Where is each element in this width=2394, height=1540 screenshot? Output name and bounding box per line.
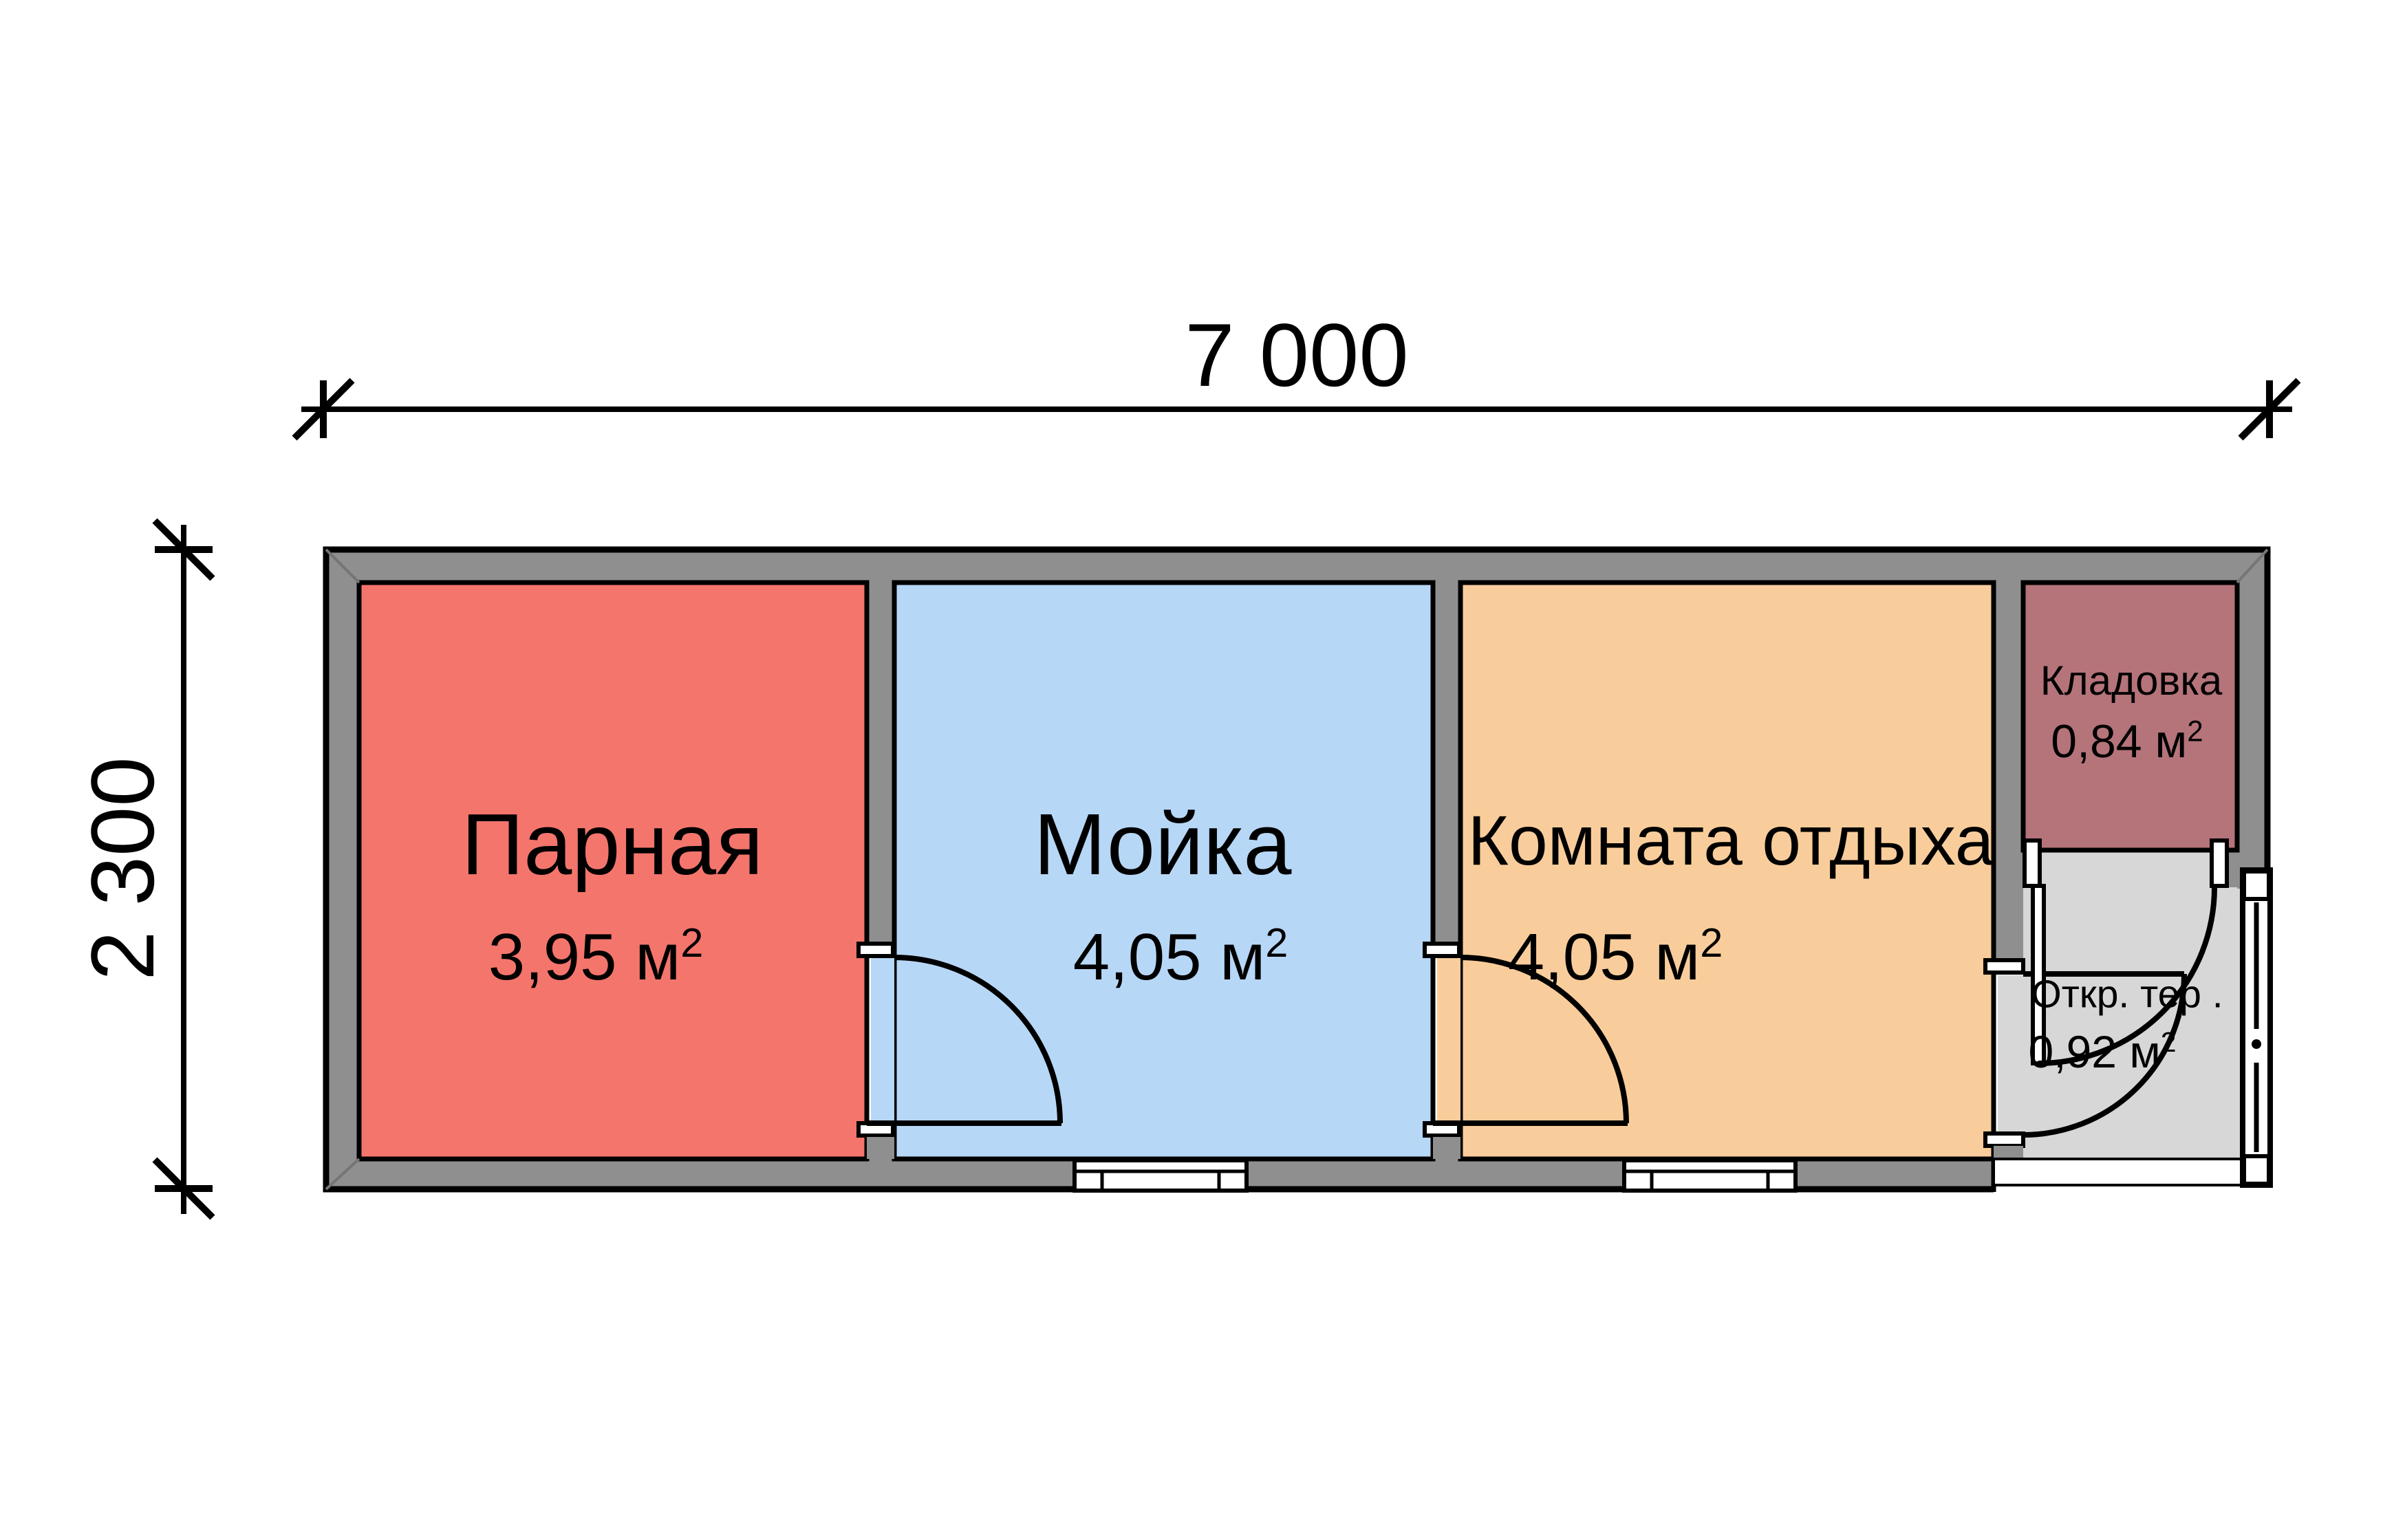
room-parnaya-area: 3,95 м2 (488, 924, 704, 990)
wall-stub-komnata (1994, 1146, 2023, 1159)
terrace-door-cap-bottom (2244, 1156, 2269, 1184)
partition-komnata-terrace (1994, 583, 2023, 960)
dimension-height-label: 2 300 (78, 757, 167, 980)
terrace-door-handle-dot (2252, 1039, 2261, 1049)
wall-stub-parnaya (867, 1137, 894, 1159)
room-terrace-area: 0,92 м2 (2029, 1029, 2177, 1074)
partition-moyka-komnata (1433, 583, 1460, 944)
jamb-kladovka-right (2212, 841, 2227, 886)
door-gap-moyka (1437, 957, 1460, 1123)
partition-parnaya-moyka (867, 583, 894, 944)
window-komnata (1624, 1160, 1795, 1191)
room-parnaya-name: Парная (462, 801, 764, 888)
room-kladovka-name: Кладовка (2040, 660, 2223, 702)
room-kladovka-area: 0,84 м2 (2051, 718, 2203, 765)
dimension-width-label: 7 000 (1185, 310, 1408, 400)
room-komnata-name: Комната отдыха (1468, 805, 1994, 876)
room-moyka-name: Мойка (1034, 801, 1292, 888)
floor-plan-drawing (0, 0, 2394, 1540)
floor-plan-canvas: 7 000 2 300 Парная 3,95 м2 Мойка 4,05 м2… (0, 0, 2394, 1540)
terrace-slab-edge (1994, 1159, 2270, 1185)
room-komnata-area: 4,05 м2 (1508, 924, 1723, 990)
room-terrace-name: Откр. тер . (2031, 975, 2223, 1015)
jamb-kladovka-left (2025, 841, 2040, 886)
jamb-komnata-bottom (1985, 1134, 2023, 1146)
terrace-entry-door (2243, 870, 2270, 1185)
jamb-parnaya-top (859, 944, 893, 956)
wall-stub-moyka (1433, 1137, 1460, 1159)
room-moyka-area: 4,05 м2 (1073, 924, 1288, 990)
jamb-moyka-top (1425, 944, 1459, 956)
jamb-komnata-top (1985, 960, 2023, 973)
door-gap-parnaya (871, 957, 894, 1123)
window-moyka (1075, 1160, 1247, 1191)
terrace-door-cap-top (2244, 871, 2269, 899)
door-gap-komnata (1998, 975, 2023, 1134)
